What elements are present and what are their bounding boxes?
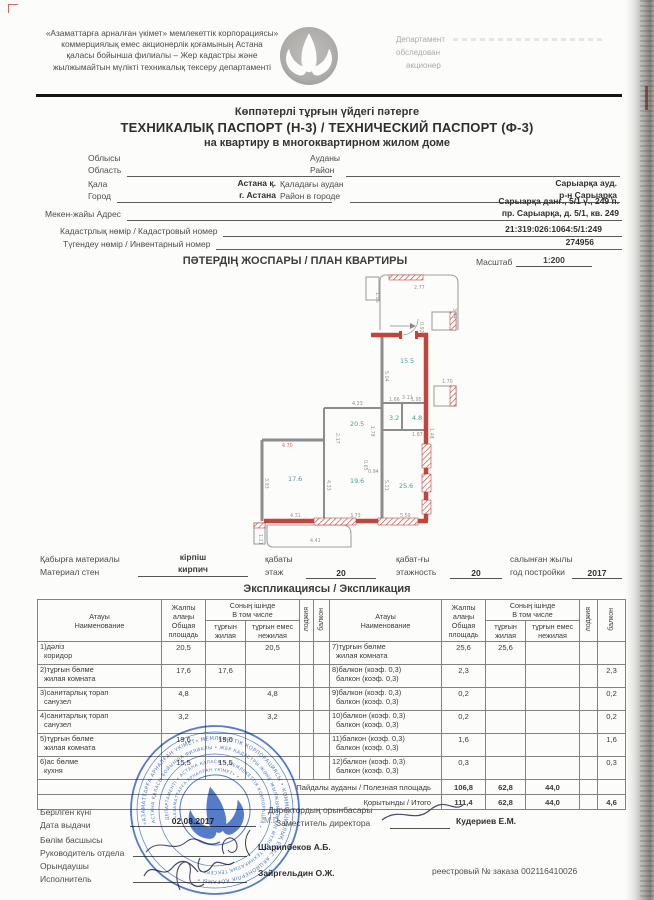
header-rule xyxy=(36,94,622,97)
plan-dimension: 3.73 xyxy=(350,513,361,519)
col-living-right: тұрғынжилая xyxy=(486,621,526,642)
floor-plan: 2.771.263.440.921.705.043.114.232.171.66… xyxy=(252,268,467,550)
org-line: қаласы бойынша филиалы – Жер кадастры жә… xyxy=(36,50,288,61)
cell-value xyxy=(526,711,580,734)
plan-dimension: 1.78 xyxy=(369,426,375,437)
dept-line: акционер xyxy=(396,60,606,73)
cell-value xyxy=(314,711,330,734)
plan-dimension: 4.41 xyxy=(310,538,321,544)
plan-dimension: 5.04 xyxy=(383,371,389,382)
cell-value: 4,8 xyxy=(246,688,300,711)
floor-value: 20 xyxy=(306,553,376,579)
cell-room-name: 12)балкон (коэф. 0,3)балкон (коэф. 0,3) xyxy=(330,757,442,780)
plan-dimension: 2.17 xyxy=(334,433,340,444)
field-inventory-value: 274956 xyxy=(216,237,622,250)
cell-value xyxy=(580,642,598,665)
plan-dimension: 5.59 xyxy=(400,513,411,519)
storeys-value: 20 xyxy=(450,553,502,579)
col-loggia-right: лоджия xyxy=(580,600,598,642)
org-name-block: «Азаматтарға арналған үкімет» мемлекетті… xyxy=(36,28,288,73)
date-label: Берілген күніДата выдачи xyxy=(40,806,91,832)
field-cadastre: Кадастрлық нөмір / Кадастровый номер 21:… xyxy=(60,224,622,237)
cell-value: 0,2 xyxy=(598,688,626,711)
plan-dimension: 4.70 xyxy=(282,443,293,449)
field-raion-value xyxy=(346,165,620,177)
cell-value xyxy=(598,642,626,665)
cell-value xyxy=(486,688,526,711)
col-nonliving-right: тұрғын емеснежилая xyxy=(526,621,580,642)
cell-value: 20,5 xyxy=(162,642,206,665)
plan-dimension: 0.92 xyxy=(418,322,424,333)
plan-room-area: 4.8 xyxy=(412,414,422,422)
field-oblast: ОблысыОбласть xyxy=(88,152,332,177)
cell-value xyxy=(314,688,330,711)
cell-value: 25,6 xyxy=(442,642,486,665)
tulip-logo-icon xyxy=(278,24,340,88)
table-row: 3)санитарлық торапсанузел4,84,89)балкон … xyxy=(38,688,626,711)
cell-value: 0,2 xyxy=(598,711,626,734)
col-total-left: Жалпы алаңыОбщая площадь xyxy=(162,600,206,642)
registry-number: реестровый № заказа 002116410026 xyxy=(432,866,577,876)
cell-value xyxy=(314,757,330,780)
cell-value xyxy=(580,757,598,780)
summary-value xyxy=(598,780,626,795)
plan-room-area: 17.6 xyxy=(288,475,302,483)
cell-value xyxy=(314,642,330,665)
cell-value xyxy=(206,688,246,711)
cell-value: 1,6 xyxy=(442,734,486,757)
org-line: жылжымайтын мүлікті техникалық тексеру д… xyxy=(36,62,288,73)
plan-dimension: 2.77 xyxy=(414,285,425,291)
scan-corner-mark xyxy=(8,4,18,13)
org-line: «Азаматтарға арналған үкімет» мемлекетті… xyxy=(36,28,288,39)
summary-value: 62,8 xyxy=(486,780,526,795)
plan-scale-label: Масштаб xyxy=(476,257,512,267)
summary-value: 4,6 xyxy=(598,795,626,810)
summary-value: 44,0 xyxy=(526,780,580,795)
cell-value xyxy=(526,688,580,711)
summary-value: 62,8 xyxy=(486,795,526,810)
plan-scale-value: 1:200 xyxy=(516,250,592,267)
wall-material-label: Қабырға материалыМатериал стен xyxy=(40,553,120,579)
cell-room-name: 3)санитарлық торапсанузел xyxy=(38,688,162,711)
plan-dimension: 1.87 xyxy=(412,432,423,438)
cell-room-name: 9)балкон (коэф. 0,3)балкон (коэф. 0,3) xyxy=(330,688,442,711)
plan-dimension: 0.94 xyxy=(368,469,379,475)
plan-dimension: 5.21 xyxy=(383,480,389,491)
plan-room-area: 15.5 xyxy=(400,357,414,365)
year-value: 2017 xyxy=(572,553,622,579)
dept-line: обследован xyxy=(396,47,606,60)
cell-value: 0,2 xyxy=(442,711,486,734)
document-title: Көппәтерлі тұрғын үйдегі пәтерге ТЕХНИКА… xyxy=(0,106,654,149)
plan-dimension: 3.93 xyxy=(263,478,269,489)
title-ru: на квартиру в многоквартирном жилом доме xyxy=(0,137,654,149)
field-inventory: Түгендеу нөмір / Инвентарный номер 27495… xyxy=(63,237,622,250)
plan-dimension: 1.26 xyxy=(374,292,380,303)
storeys-label: қабат-ғыэтажность xyxy=(396,553,436,579)
cell-value xyxy=(300,688,314,711)
col-nonliving-left: тұрғын емеснежилая xyxy=(246,621,300,642)
cell-value: 25,6 xyxy=(486,642,526,665)
cell-room-name: 11)балкон (коэф. 0,3)балкон (коэф. 0,3) xyxy=(330,734,442,757)
cell-room-name: 2)тұрғын бөлмежилая комната xyxy=(38,665,162,688)
official-stamp: «АЗАМАТТАРҒА АРНАЛҒАН ҮКІМЕТ» МЕМЛЕКЕТТІ… xyxy=(116,722,314,900)
plan-title: ПӘТЕРДІҢ ЖОСПАРЫ / ПЛАН КВАРТИРЫ xyxy=(130,255,460,267)
table-row: 1)дәлізкоридор20,520,57)тұрғын бөлмежила… xyxy=(38,642,626,665)
plan-dimension: 4.31 xyxy=(290,513,301,519)
cell-value: 1,6 xyxy=(598,734,626,757)
cell-value xyxy=(526,757,580,780)
plan-dimension: 4.33 xyxy=(325,480,331,491)
cell-value xyxy=(314,665,330,688)
cell-value xyxy=(300,642,314,665)
field-oblast-value xyxy=(127,165,332,177)
plan-dimension: 1.48 xyxy=(428,428,434,439)
cell-value xyxy=(486,734,526,757)
plan-dimension: 1.70 xyxy=(442,379,453,385)
plan-room-area: 3.2 xyxy=(389,414,399,422)
plan-dimension: 3.44 xyxy=(451,308,457,319)
summary-value xyxy=(580,780,598,795)
cell-value: 2,3 xyxy=(598,665,626,688)
cell-value xyxy=(580,711,598,734)
cell-value xyxy=(486,665,526,688)
table-row: 2)тұрғын бөлмежилая комната17,617,68)бал… xyxy=(38,665,626,688)
plan-room-area: 20.5 xyxy=(350,420,364,428)
cell-value xyxy=(300,665,314,688)
cell-value xyxy=(580,665,598,688)
plan-dimension: 4.23 xyxy=(352,401,363,407)
explication-title: Экспликациясы / Экспликация xyxy=(0,583,654,595)
cell-room-name: 8)балкон (коэф. 0,3)балкон (коэф. 0,3) xyxy=(330,665,442,688)
cell-value xyxy=(206,642,246,665)
deputy-signature-icon xyxy=(378,798,468,828)
table-header-row: АтауыНаименование Жалпы алаңыОбщая площа… xyxy=(38,600,626,621)
col-incl-right: Соның ішіндеВ том числе xyxy=(486,600,580,621)
plan-dimension: 1.66 xyxy=(389,397,400,403)
cell-value xyxy=(526,734,580,757)
plan-bottom-balcony xyxy=(267,525,351,547)
cell-value: 4,8 xyxy=(162,688,206,711)
cell-value: 0,3 xyxy=(442,757,486,780)
col-balcony-left: балкон xyxy=(314,600,330,642)
cell-room-name: 7)тұрғын бөлмежилая комната xyxy=(330,642,442,665)
col-total-right: Жалпы алаңыОбщая площадь xyxy=(442,600,486,642)
cell-value xyxy=(526,665,580,688)
org-line: коммерциялық емес акционерлік қоғамының … xyxy=(36,39,288,50)
field-address: Мекен-жайы Адрес Сарыарқа данғ., 5/1 ү.,… xyxy=(45,196,622,221)
plan-room-area: 25.6 xyxy=(399,482,413,490)
cell-value xyxy=(486,757,526,780)
field-cadastre-value: 21:319:026:1064:5/1:249 xyxy=(223,224,622,237)
cell-value: 0,3 xyxy=(598,757,626,780)
dept-line: Департамент xyxy=(396,34,606,47)
col-balcony-right: балкон xyxy=(598,600,626,642)
plan-dimension: 1.21 xyxy=(257,534,263,545)
title-kk: Көппәтерлі тұрғын үйдегі пәтерге xyxy=(0,106,654,118)
summary-value xyxy=(580,795,598,810)
technical-passport-document: { "header": { "org_lines": [ "«Азаматтар… xyxy=(0,0,654,900)
cell-value: 0,2 xyxy=(442,688,486,711)
cell-value xyxy=(486,711,526,734)
dept-block: Департамент обследован акционер xyxy=(396,34,606,72)
col-incl-left: Соның ішіндеВ том числе xyxy=(206,600,300,621)
head-label: Бөлім басшысыРуководитель отдела xyxy=(40,834,124,860)
col-name-right: АтауыНаименование xyxy=(330,600,442,642)
field-raion: АуданыРайон xyxy=(310,152,620,177)
cell-value xyxy=(314,734,330,757)
plan-room-area: 19.6 xyxy=(350,477,364,485)
cell-room-name: 10)балкон (коэф. 0,3)балкон (коэф. 0,3) xyxy=(330,711,442,734)
col-loggia-left: лоджия xyxy=(300,600,314,642)
cell-value xyxy=(580,688,598,711)
summary-value: 44,0 xyxy=(526,795,580,810)
floor-label: қабатыэтаж xyxy=(265,553,293,579)
wall-material-value: кірпішкирпич xyxy=(138,551,248,577)
title-main: ТЕХНИКАЛЫҚ ПАСПОРТ (Н-3) / ТЕХНИЧЕСКИЙ П… xyxy=(0,120,654,135)
cell-room-name: 1)дәлізкоридор xyxy=(38,642,162,665)
year-label: салынған жылыгод постройки xyxy=(510,553,573,579)
stamp-tulip-icon xyxy=(183,781,248,843)
executor-label: ОрындаушыИсполнитель xyxy=(40,860,92,886)
cell-value xyxy=(526,642,580,665)
cell-value: 20,5 xyxy=(246,642,300,665)
col-living-left: тұрғынжилая xyxy=(206,621,246,642)
plan-dimension: 1.95 xyxy=(411,397,422,403)
cell-value xyxy=(580,734,598,757)
cell-value xyxy=(246,665,300,688)
col-name-left: АтауыНаименование xyxy=(38,600,162,642)
cell-value: 17,6 xyxy=(206,665,246,688)
field-address-value: Сарыарқа данғ., 5/1 ү., 249 п.пр. Сарыар… xyxy=(127,196,622,221)
cell-value: 2,3 xyxy=(442,665,486,688)
cell-value: 17,6 xyxy=(162,665,206,688)
summary-value: 106,8 xyxy=(442,780,486,795)
